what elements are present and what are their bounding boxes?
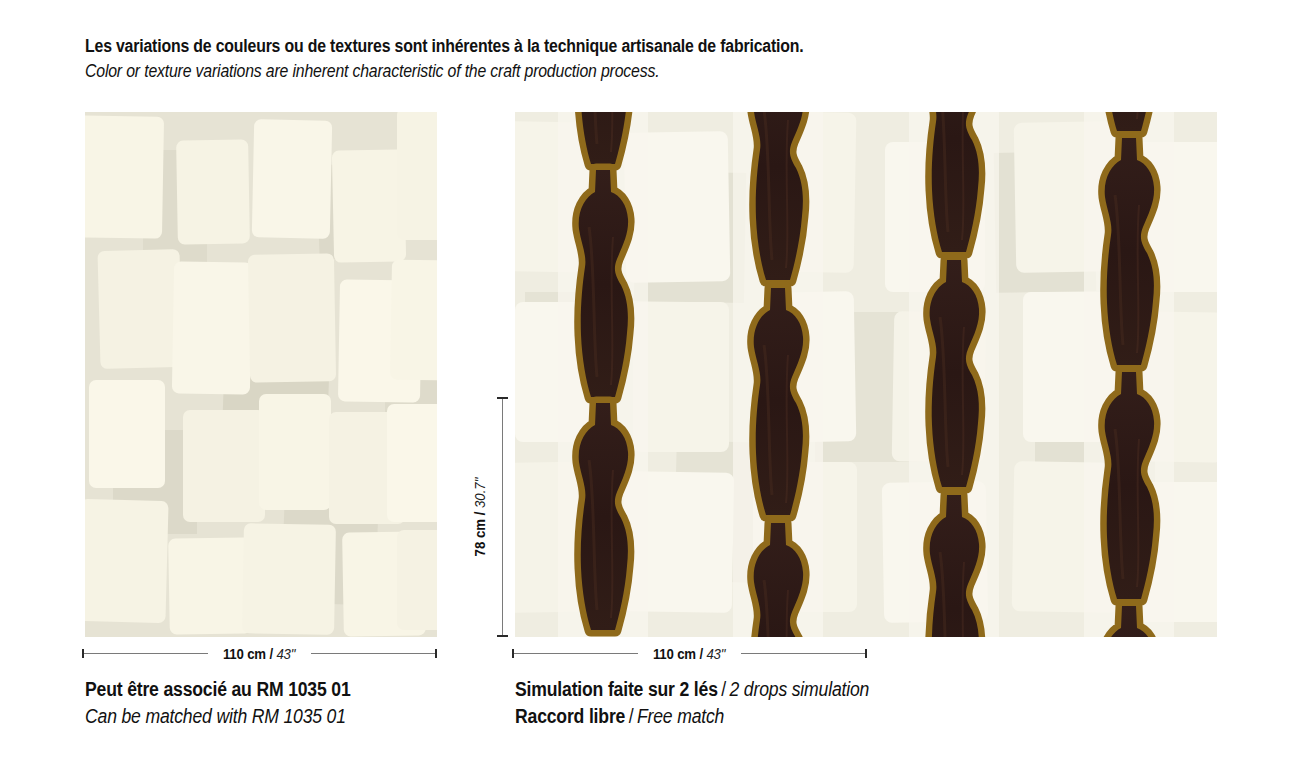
height-dimension-line	[502, 398, 503, 637]
dimension-tick	[435, 649, 437, 658]
disclaimer-text: Les variations de couleurs ou de texture…	[85, 34, 901, 84]
plain-swatch-image	[85, 112, 437, 637]
dimension-tick	[82, 649, 84, 658]
right-caption-line2-fr: Raccord libre	[515, 705, 625, 727]
right-caption-line1-en: 2 drops simulation	[730, 678, 870, 700]
height-imperial: 30.7"	[471, 478, 488, 508]
left-width-dimension: 110 cm / 43"	[82, 646, 437, 661]
dimension-tick	[497, 397, 508, 399]
left-caption-fr: Peut être associé au RM 1035 01	[85, 676, 351, 703]
spec-sheet-page: Les variations de couleurs ou de texture…	[0, 0, 1299, 764]
dimension-line	[82, 653, 208, 654]
height-dimension-label: 78 cm / 30.7"	[471, 464, 491, 570]
dimension-line	[512, 653, 638, 654]
right-swatch-caption: Simulation faite sur 2 lés/2 drops simul…	[515, 676, 918, 730]
caption-separator: /	[721, 678, 726, 700]
left-width-metric: 110 cm /	[223, 645, 276, 662]
height-metric: 78 cm /	[471, 508, 488, 556]
left-swatch-caption: Peut être associé au RM 1035 01 Can be m…	[85, 676, 387, 730]
left-caption-en: Can be matched with RM 1035 01	[85, 703, 346, 730]
dimension-tick	[497, 635, 508, 637]
right-width-imperial: 43"	[707, 645, 726, 662]
dimension-line	[311, 653, 437, 654]
right-width-dimension: 110 cm / 43"	[512, 646, 867, 661]
left-width-label: 110 cm / 43"	[215, 645, 305, 662]
right-caption-line2-en: Free match	[637, 705, 724, 727]
right-width-label: 110 cm / 43"	[645, 645, 735, 662]
dimension-line	[741, 653, 867, 654]
right-width-metric: 110 cm /	[653, 645, 706, 662]
right-caption-line1-fr: Simulation faite sur 2 lés	[515, 678, 718, 700]
right-caption-line2: Raccord libre/Free match	[515, 703, 724, 730]
dimension-tick	[512, 649, 514, 658]
left-width-imperial: 43"	[277, 645, 296, 662]
caption-separator: /	[629, 705, 634, 727]
disclaimer-fr: Les variations de couleurs ou de texture…	[85, 34, 803, 59]
dimension-tick	[865, 649, 867, 658]
disclaimer-en: Color or texture variations are inherent…	[85, 59, 659, 84]
right-caption-line1: Simulation faite sur 2 lés/2 drops simul…	[515, 676, 869, 703]
figure-swatch-image	[515, 112, 1217, 637]
